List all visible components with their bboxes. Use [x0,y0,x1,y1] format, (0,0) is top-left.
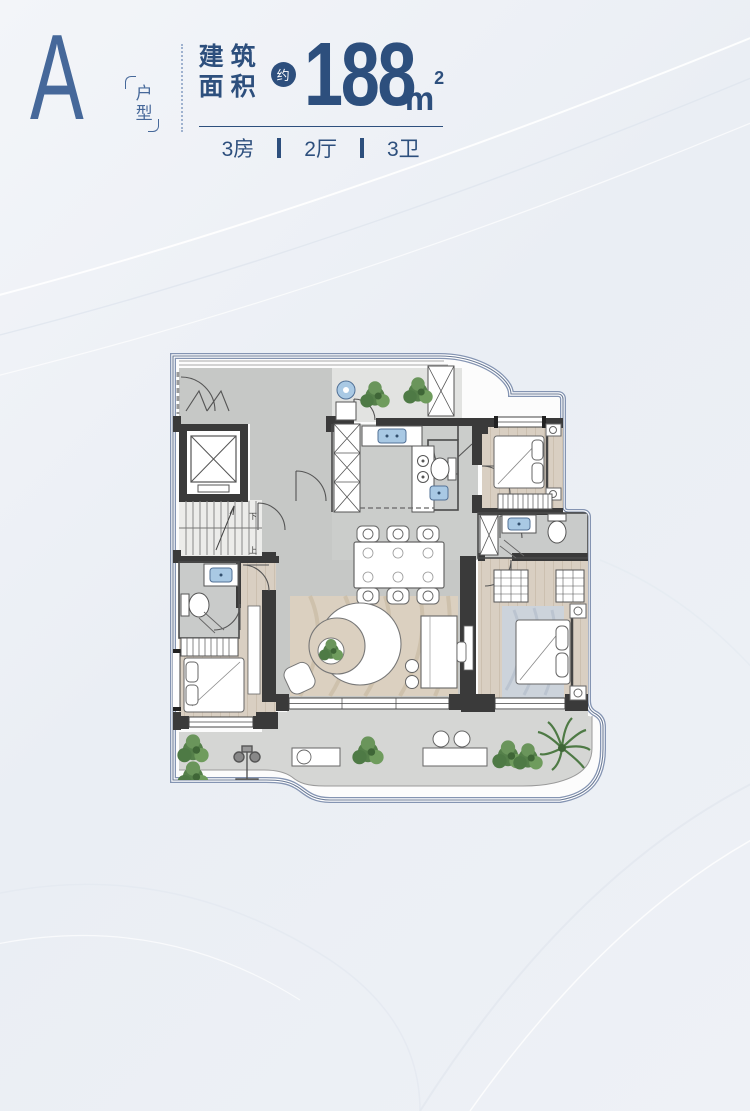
bracket-top-left [125,76,136,89]
spec-baths: 3卫 [364,133,443,163]
area-unit-m: m [405,80,434,117]
wardrobe [498,494,552,509]
area-label-line1: 建筑 [199,43,263,73]
area-label-line2: 面积 [199,73,263,103]
header-right: 建筑 面积 约 188 m2 3房 2厅 3卫 [199,40,443,163]
balcony-bench [292,748,340,766]
spec-row: 3房 2厅 3卫 [199,126,443,163]
stool [454,731,470,747]
window-bedroom2-top [494,416,546,428]
toilet [548,521,566,543]
plan-interior: 下 上 [171,361,592,789]
unit-type-label: 户型 [125,76,158,132]
spec-halls: 2厅 [281,133,360,163]
balcony-planter [423,748,487,766]
bracket-bottom-right [148,119,159,132]
stairs-up-label: 上 [249,546,257,555]
window-bedroom3-bottom [189,717,253,727]
tv-console [421,616,457,688]
area-unit-sup: 2 [434,68,444,89]
kitchen-sink [378,429,406,443]
area-label: 建筑 面积 [199,43,263,102]
wardrobe [181,638,238,656]
window-master-bottom [495,698,565,709]
elevator [187,431,240,494]
approx-badge: 约 [271,62,296,87]
stairs-down-label: 下 [249,512,257,521]
spec-rooms: 3房 [199,133,278,163]
stool [433,731,449,747]
unit-letter: A [30,26,84,128]
dining [354,526,444,604]
toilet [431,458,449,480]
header: A 户型 建筑 面积 约 188 m2 3房 2厅 3卫 [30,26,443,163]
unit-type-text: 户型 [133,84,152,124]
dotted-divider [181,44,183,132]
area-row: 建筑 面积 约 188 m2 [199,40,443,118]
area-unit: m2 [405,80,434,118]
window-living-balcony [289,698,449,709]
floor-plan: 下 上 [0,0,750,1111]
desk [248,606,260,694]
area-value: 188 [304,40,414,110]
